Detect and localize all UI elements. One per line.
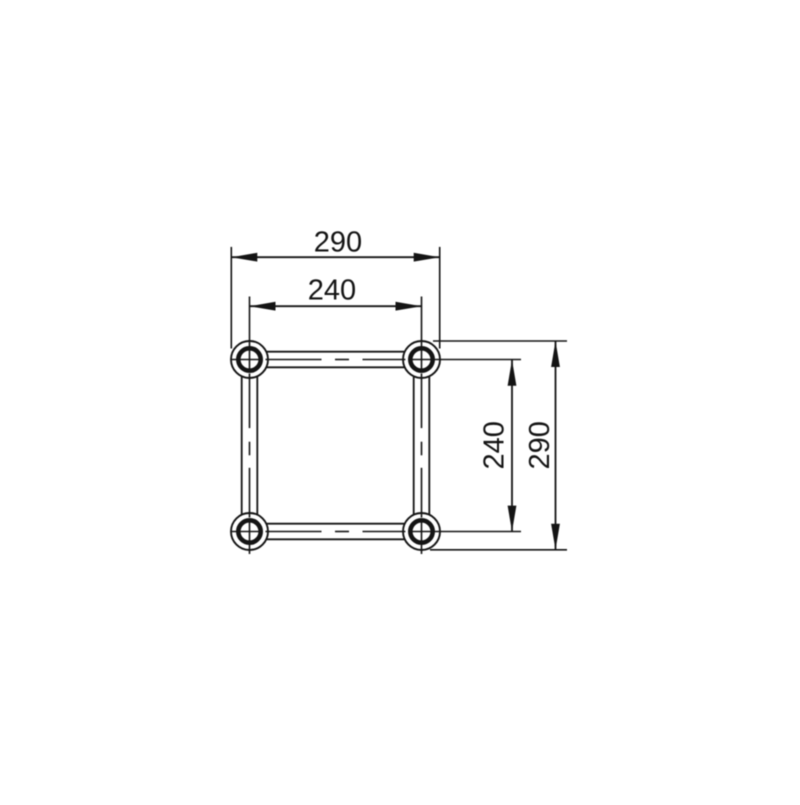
svg-text:240: 240 bbox=[479, 421, 511, 469]
svg-text:240: 240 bbox=[308, 275, 356, 307]
svg-text:290: 290 bbox=[524, 421, 556, 469]
svg-text:290: 290 bbox=[314, 227, 362, 259]
